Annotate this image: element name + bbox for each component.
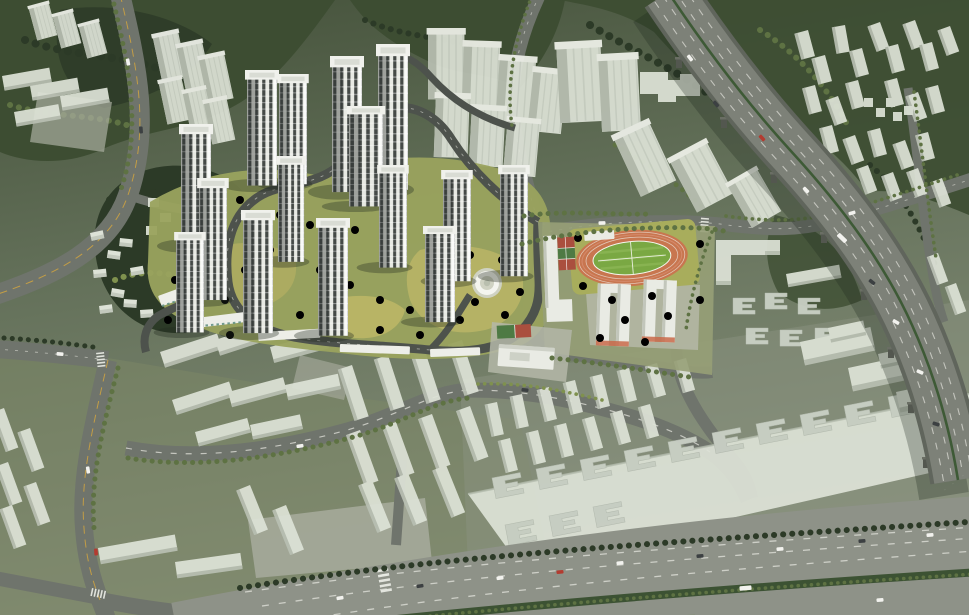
aerial-rendering bbox=[0, 0, 969, 615]
rendering-canvas bbox=[0, 0, 969, 615]
sports-courts bbox=[557, 237, 576, 271]
kindergarten bbox=[488, 322, 572, 382]
